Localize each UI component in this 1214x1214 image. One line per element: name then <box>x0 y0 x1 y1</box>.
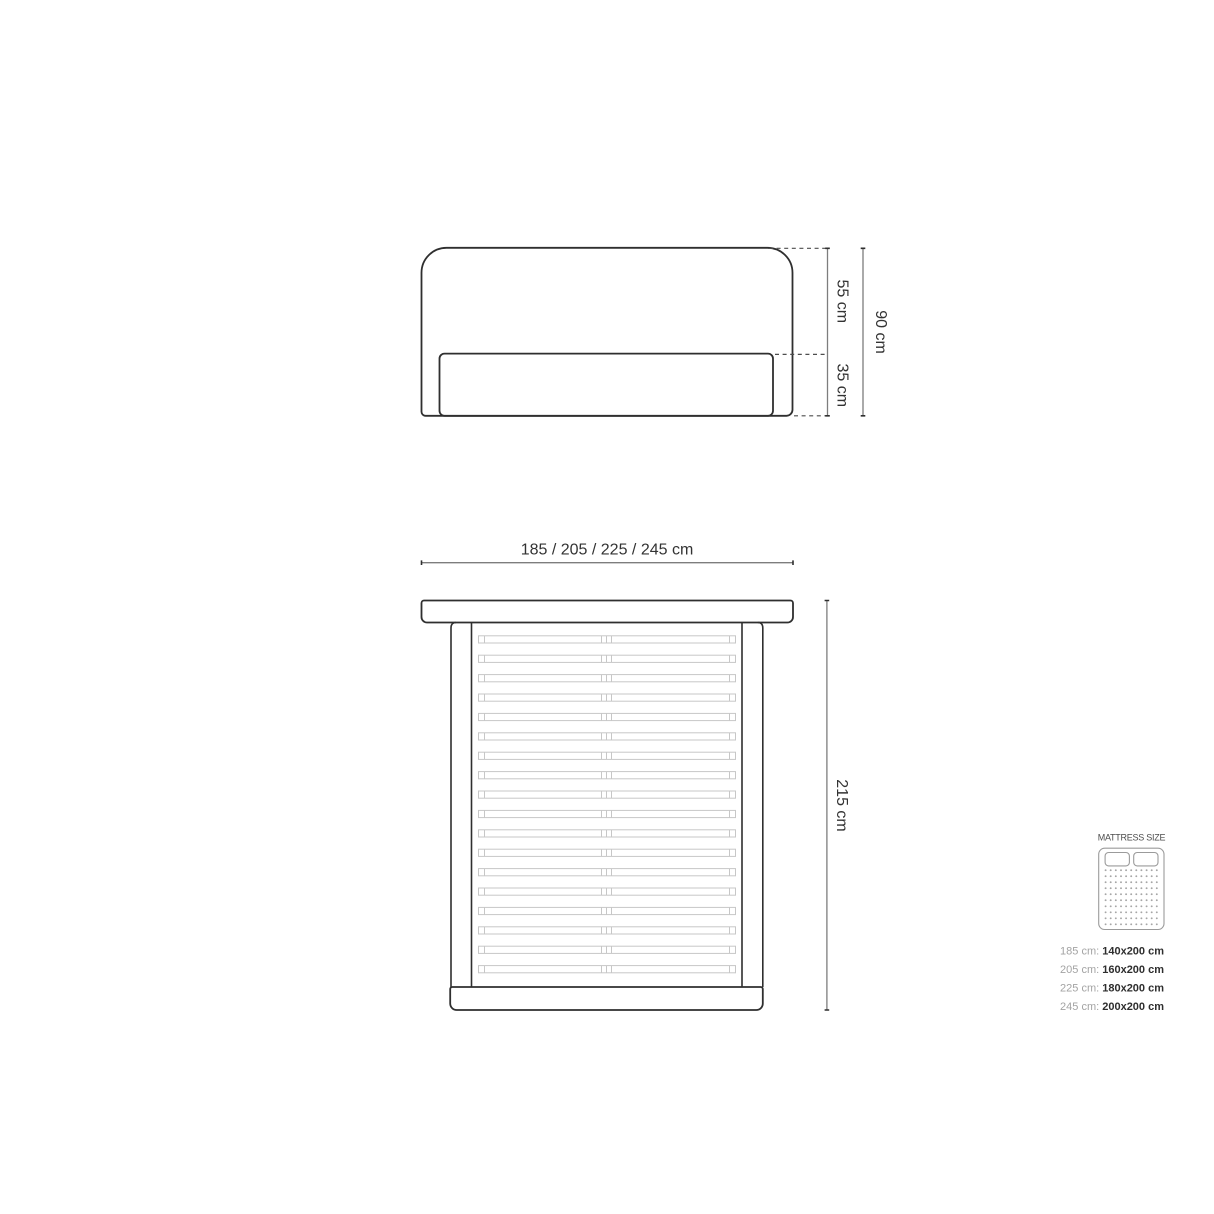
svg-text:90 cm: 90 cm <box>872 310 889 354</box>
svg-text:55 cm: 55 cm <box>833 280 850 324</box>
svg-text:35 cm: 35 cm <box>834 364 851 408</box>
svg-text:205 cm: 160x200 cm: 205 cm: 160x200 cm <box>1060 964 1164 976</box>
svg-text:185 / 205 / 225 / 245 cm: 185 / 205 / 225 / 245 cm <box>521 541 694 558</box>
svg-text:225 cm: 180x200 cm: 225 cm: 180x200 cm <box>1060 983 1164 995</box>
svg-text:MATTRESS SIZE: MATTRESS SIZE <box>1098 833 1166 843</box>
svg-text:185 cm: 140x200 cm: 185 cm: 140x200 cm <box>1060 946 1164 958</box>
svg-text:245 cm: 200x200 cm: 245 cm: 200x200 cm <box>1060 1001 1164 1013</box>
svg-text:215 cm: 215 cm <box>833 779 850 831</box>
